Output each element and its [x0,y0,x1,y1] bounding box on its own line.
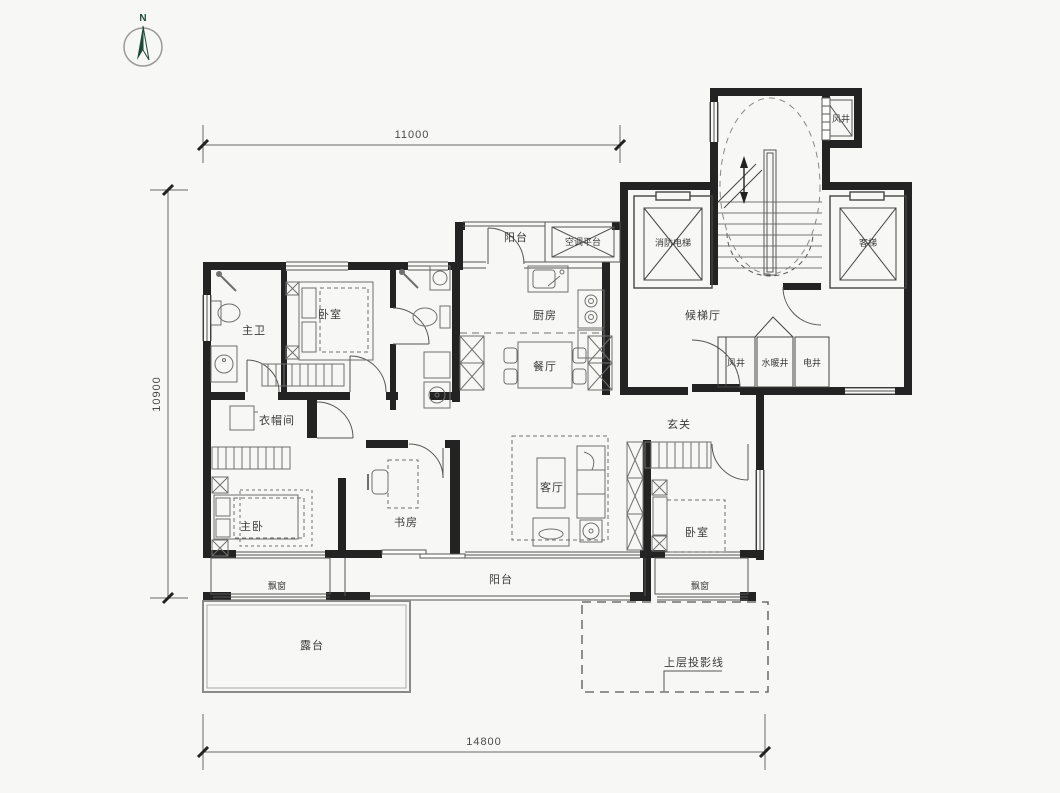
label-kitchen: 厨房 [533,309,557,322]
floor-plan-drawing: N 11000 10900 14800 [0,0,1060,793]
north-compass: N [124,13,162,66]
dim-bottom-label: 14800 [466,736,502,748]
dimension-left: 10900 [150,185,188,603]
label-wind-shaft-top: 风井 [832,113,850,124]
label-closet: 衣帽间 [259,413,295,427]
label-plumbing-shaft: 水暖井 [761,357,788,368]
label-ac-platform: 空调平台 [565,236,601,247]
label-bay-window-right: 飘窗 [691,580,709,591]
label-fire-elevator: 消防电梯 [655,237,691,248]
label-projection-line: 上层投影线 [664,655,724,669]
label-bedroom-right: 卧室 [685,525,709,539]
label-bedroom-top: 卧室 [318,307,342,321]
compass-n-label: N [139,13,146,24]
label-master-bedroom: 主卧 [240,520,264,533]
label-bay-window-left: 飘窗 [268,580,286,591]
label-master-bath: 主卫 [242,324,266,337]
label-study: 书房 [394,516,418,529]
label-balcony-top: 阳台 [504,230,528,244]
upper-projection [582,602,768,692]
dimension-bottom: 14800 [198,714,770,770]
walls [203,88,912,601]
dimension-top: 11000 [198,125,625,163]
label-foyer: 玄关 [667,417,691,431]
label-wind-shaft: 风井 [727,357,745,368]
label-elevator-hall: 候梯厅 [685,308,721,322]
label-passenger-elevator: 客梯 [859,237,877,248]
label-dining: 餐厅 [533,359,557,373]
label-living: 客厅 [540,480,564,494]
label-balcony-bottom: 阳台 [489,572,513,586]
floor-plan-page: N 11000 10900 14800 [0,0,1060,793]
dim-left-label: 10900 [151,376,163,412]
dim-top-label: 11000 [395,129,430,141]
label-terrace: 露台 [300,638,324,652]
label-electric-shaft: 电井 [803,357,821,368]
